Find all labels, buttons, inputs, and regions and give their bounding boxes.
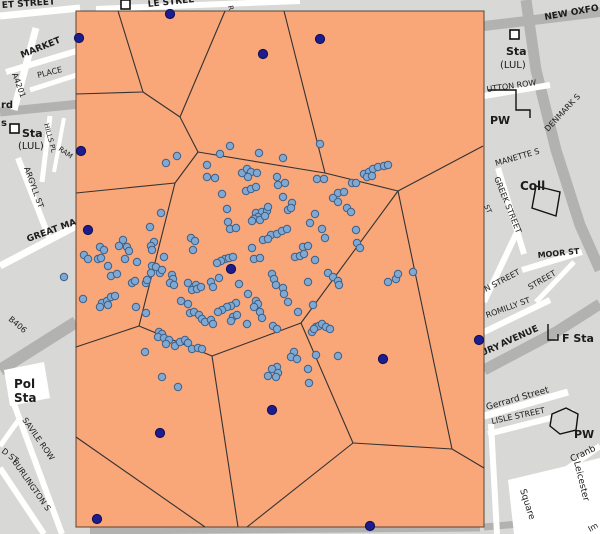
road (90, 528, 480, 531)
death-point (224, 218, 231, 225)
voronoi-overlay (76, 11, 484, 527)
death-point (223, 205, 230, 212)
death-point (148, 246, 155, 253)
death-point (287, 204, 294, 211)
death-point (216, 150, 223, 157)
pump-point (165, 9, 174, 18)
death-point (334, 198, 341, 205)
death-point (368, 172, 375, 179)
death-point (60, 273, 67, 280)
death-point (248, 244, 255, 251)
death-point (304, 242, 311, 249)
death-point (97, 254, 104, 261)
death-point (248, 217, 255, 224)
death-point (133, 258, 140, 265)
death-point (272, 373, 279, 380)
death-point (158, 266, 165, 273)
death-point (384, 161, 391, 168)
death-point (280, 290, 287, 297)
death-point (209, 283, 216, 290)
death-point (309, 301, 316, 308)
death-point (213, 259, 220, 266)
pump-point (258, 49, 267, 58)
death-point (233, 311, 240, 318)
death-point (244, 290, 251, 297)
death-point (409, 268, 416, 275)
death-point (274, 181, 281, 188)
death-point (215, 274, 222, 281)
death-point (321, 234, 328, 241)
street-label: Pol (14, 377, 35, 391)
death-point (305, 379, 312, 386)
death-point (313, 175, 320, 182)
death-point (352, 226, 359, 233)
street-label: s (1, 118, 7, 129)
pump-point (155, 428, 164, 437)
street-label: Sta (506, 45, 527, 58)
death-point (214, 308, 221, 315)
death-point (125, 247, 132, 254)
death-point (147, 269, 154, 276)
death-point (293, 355, 300, 362)
death-point (218, 190, 225, 197)
death-point (157, 209, 164, 216)
death-point (229, 253, 236, 260)
pump-point (315, 34, 324, 43)
death-point (189, 246, 196, 253)
death-point (356, 244, 363, 251)
pump-point (226, 264, 235, 273)
death-point (244, 173, 251, 180)
death-point (252, 183, 259, 190)
death-point (203, 161, 210, 168)
station-square-icon (121, 0, 130, 9)
death-point (162, 340, 169, 347)
death-point (96, 303, 103, 310)
death-point (209, 320, 216, 327)
death-point (320, 175, 327, 182)
death-point (143, 276, 150, 283)
death-point (198, 345, 205, 352)
station-square-icon (10, 124, 19, 133)
street-label: Sta (22, 127, 43, 140)
pump-point (378, 354, 387, 363)
street-label: PW (490, 114, 510, 127)
pump-point (267, 405, 276, 414)
death-point (384, 278, 391, 285)
death-point (160, 253, 167, 260)
death-point (306, 219, 313, 226)
death-point (174, 383, 181, 390)
death-point (284, 298, 291, 305)
death-point (281, 179, 288, 186)
street-label: (LUL) (500, 60, 526, 71)
death-point (226, 142, 233, 149)
death-point (283, 225, 290, 232)
street-label: Sta (14, 391, 36, 405)
death-point (253, 169, 260, 176)
death-point (235, 280, 242, 287)
map-viewport[interactable]: ET STREETLE STREERENEW OXFOMARKETPLACEA4… (0, 0, 600, 534)
pump-point (83, 225, 92, 234)
death-point (84, 255, 91, 262)
death-point (170, 281, 177, 288)
street-label: PW (574, 428, 594, 441)
pump-point (76, 146, 85, 155)
death-point (184, 279, 191, 286)
street-label: rd (1, 100, 13, 111)
pump-point (74, 33, 83, 42)
death-point (132, 303, 139, 310)
death-point (304, 365, 311, 372)
death-point (340, 188, 347, 195)
street-label: F Sta (562, 332, 594, 345)
death-point (394, 270, 401, 277)
death-point (191, 237, 198, 244)
death-point (203, 173, 210, 180)
street-label: Coll (520, 179, 545, 193)
death-point (347, 208, 354, 215)
death-point (264, 203, 271, 210)
death-point (310, 325, 317, 332)
death-point (100, 246, 107, 253)
death-point (352, 179, 359, 186)
death-point (131, 277, 138, 284)
death-point (312, 351, 319, 358)
death-point (334, 352, 341, 359)
death-point (121, 255, 128, 262)
death-point (177, 297, 184, 304)
death-point (326, 325, 333, 332)
death-point (142, 309, 149, 316)
death-point (272, 281, 279, 288)
death-point (141, 348, 148, 355)
street-label: (LUL) (18, 141, 44, 152)
death-point (294, 308, 301, 315)
pump-point (474, 335, 483, 344)
death-point (304, 278, 311, 285)
death-point (113, 270, 120, 277)
death-point (258, 314, 265, 321)
pump-point (92, 514, 101, 523)
death-point (227, 317, 234, 324)
death-point (111, 292, 118, 299)
death-point (255, 149, 262, 156)
death-point (197, 283, 204, 290)
death-point (279, 193, 286, 200)
death-point (79, 295, 86, 302)
death-point (146, 223, 153, 230)
death-point (104, 262, 111, 269)
station-square-icon (510, 30, 519, 39)
death-point (162, 159, 169, 166)
death-point (316, 140, 323, 147)
death-point (311, 256, 318, 263)
death-point (264, 372, 271, 379)
death-point (158, 373, 165, 380)
cholera-voronoi-map: ET STREETLE STREERENEW OXFOMARKETPLACEA4… (0, 0, 600, 534)
death-point (335, 281, 342, 288)
death-point (184, 300, 191, 307)
death-point (232, 224, 239, 231)
death-point (115, 242, 122, 249)
death-point (243, 320, 250, 327)
death-point (104, 301, 111, 308)
death-point (311, 210, 318, 217)
pump-point (365, 521, 374, 530)
death-point (273, 325, 280, 332)
death-point (273, 173, 280, 180)
death-point (256, 254, 263, 261)
death-point (279, 154, 286, 161)
death-point (300, 250, 307, 257)
death-point (211, 174, 218, 181)
death-point (318, 225, 325, 232)
death-point (173, 152, 180, 159)
death-point (264, 235, 271, 242)
death-point (261, 212, 268, 219)
